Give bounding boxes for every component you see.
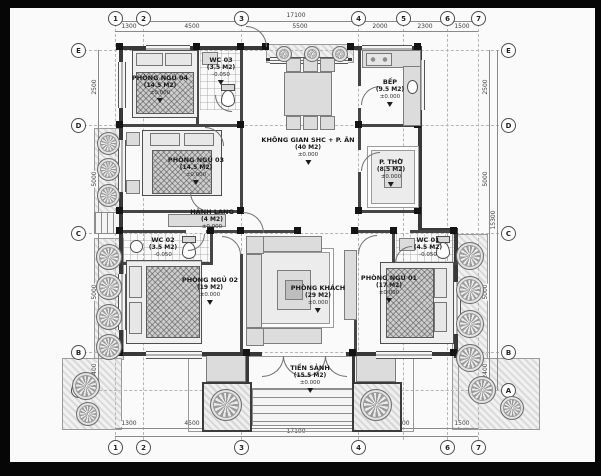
entry-steps xyxy=(252,388,354,426)
axis-bottom-3: 3 xyxy=(234,440,249,455)
column xyxy=(414,207,421,214)
column xyxy=(349,349,356,356)
column xyxy=(193,43,200,50)
wall xyxy=(122,230,186,233)
column xyxy=(116,121,123,128)
room-name: BẾP xyxy=(376,78,404,86)
room-name: PHÒNG NGỦ 02 xyxy=(182,276,238,284)
dim-line xyxy=(115,436,478,437)
porch-base xyxy=(206,354,246,382)
sofa xyxy=(262,236,322,252)
room-area: (17 M2) xyxy=(361,282,417,290)
room-area: (40 M2) xyxy=(261,144,354,152)
wall xyxy=(358,172,361,212)
column xyxy=(294,227,301,234)
sofa-corner xyxy=(246,328,264,346)
room-label-wc1: WC 01 (4.5 M2) -0.050 xyxy=(414,236,442,259)
dim-right-seg: 5000 xyxy=(483,170,489,187)
room-label-bedroom1: PHÒNG NGỦ 01 (17 M2) ±0.000 xyxy=(361,274,417,303)
axis-top-2: 2 xyxy=(136,11,151,26)
level-marker-icon xyxy=(218,80,224,85)
axis-left-D: D xyxy=(71,118,86,133)
wall xyxy=(210,233,213,265)
room-area: (8.5 M2) xyxy=(377,166,405,174)
sofa-corner xyxy=(246,236,264,254)
axis-bottom-7: 7 xyxy=(471,440,486,455)
level-marker-icon xyxy=(305,160,311,165)
room-label-bedroom2: PHÒNG NGỦ 02 (19 M2) ±0.000 xyxy=(182,276,238,305)
room-label-bedroom3: PHÒNG NGỦ 03 (14.5 M2) ±0.000 xyxy=(168,156,224,185)
dim-top-seg: 2300 xyxy=(416,24,433,30)
pillow xyxy=(129,302,142,334)
axis-top-6: 6 xyxy=(440,11,455,26)
room-label-kitchen: BẾP (9.5 M2) ±0.000 xyxy=(376,78,404,107)
plant-icon xyxy=(456,276,484,304)
wall xyxy=(249,352,262,356)
room-name: P. THỜ xyxy=(377,158,405,166)
room-name: KHÔNG GIAN SHC + P. ĂN xyxy=(261,136,354,144)
plant-icon xyxy=(72,372,100,400)
plant-icon xyxy=(456,242,484,270)
room-level: ±0.000 xyxy=(376,94,404,101)
column xyxy=(116,207,123,214)
room-level: ±0.000 xyxy=(190,224,234,231)
room-name: HÀNH LANG xyxy=(190,208,234,216)
plant-icon xyxy=(96,334,122,360)
column xyxy=(450,227,457,234)
room-name: WC 03 xyxy=(207,56,235,64)
room-area: (14.5 M2) xyxy=(168,164,224,172)
plant-icon xyxy=(500,396,524,420)
room-label-common-space: KHÔNG GIAN SHC + P. ĂN (40 M2) ±0.000 xyxy=(261,136,354,165)
wall xyxy=(240,254,243,352)
pillow xyxy=(434,268,447,298)
level-marker-icon xyxy=(388,182,394,187)
dim-bottom-seg: 1500 xyxy=(453,421,470,427)
wall xyxy=(246,356,249,384)
room-level: -0.050 xyxy=(207,72,235,79)
plant-icon xyxy=(332,46,348,62)
room-area: (3.5 M2) xyxy=(149,244,177,252)
dim-top-overall: 17100 xyxy=(285,13,306,19)
dim-right-seg: 2500 xyxy=(483,78,489,95)
column xyxy=(237,121,244,128)
dim-top-seg: 4500 xyxy=(183,24,200,30)
plant-icon xyxy=(210,389,242,421)
room-label-living: PHÒNG KHÁCH (29 M2) ±0.000 xyxy=(291,284,346,313)
chair xyxy=(286,116,301,130)
wall xyxy=(358,50,361,86)
room-name: PHÒNG NGỦ 01 xyxy=(361,274,417,282)
axis-bottom-6: 6 xyxy=(440,440,455,455)
room-level: -0.050 xyxy=(149,252,177,259)
axis-bottom-1: 1 xyxy=(108,440,123,455)
chair xyxy=(303,116,318,130)
axis-top-3: 3 xyxy=(234,11,249,26)
room-area: (4.5 M2) xyxy=(414,244,442,252)
dim-left-seg: 2500 xyxy=(92,78,98,95)
plant-icon xyxy=(304,46,320,62)
dim-bottom-seg: 1300 xyxy=(120,421,137,427)
column xyxy=(355,207,362,214)
dim-right-overall: 15300 xyxy=(491,209,497,230)
room-area: (14.5 M2) xyxy=(132,82,188,90)
room-level: ±0.000 xyxy=(290,380,330,387)
pillow xyxy=(434,302,447,332)
column xyxy=(243,349,250,356)
plant-icon xyxy=(97,158,120,181)
dim-right-seg: 5000 xyxy=(483,283,489,300)
room-level: ±0.000 xyxy=(182,292,238,299)
level-marker-icon xyxy=(307,388,313,393)
chair xyxy=(320,58,335,72)
room-label-bedroom4: PHÒNG NGỦ 04 (14.5 M2) ±0.000 xyxy=(132,74,188,103)
plant-icon xyxy=(96,274,122,300)
level-marker-icon xyxy=(207,300,213,305)
dim-line xyxy=(497,50,498,390)
nightstand xyxy=(126,180,140,194)
axis-top-5: 5 xyxy=(396,11,411,26)
room-level: ±0.000 xyxy=(168,172,224,179)
axis-right-E: E xyxy=(501,43,516,58)
dim-top-seg: 1500 xyxy=(453,24,470,30)
room-label-worship: P. THỜ (8.5 M2) ±0.000 xyxy=(377,158,405,187)
column xyxy=(116,227,123,234)
plant-icon xyxy=(96,244,122,270)
column xyxy=(351,227,358,234)
axis-top-1: 1 xyxy=(108,11,123,26)
axis-left-E: E xyxy=(71,43,86,58)
wall xyxy=(352,356,355,384)
room-area: (19 M2) xyxy=(182,284,238,292)
plant-icon xyxy=(276,46,292,62)
pillow xyxy=(165,53,192,66)
dim-line xyxy=(115,21,478,22)
room-label-porch: TIỀN SẢNH (15.5 M2) ±0.000 xyxy=(290,364,330,393)
room-level: ±0.000 xyxy=(361,290,417,297)
dim-line xyxy=(115,31,478,32)
plant-icon xyxy=(97,184,120,207)
room-name: WC 02 xyxy=(149,236,177,244)
room-area: (29 M2) xyxy=(291,292,346,300)
level-marker-icon xyxy=(157,98,163,103)
pillow xyxy=(129,266,142,298)
level-marker-icon xyxy=(386,298,392,303)
axis-left-B: B xyxy=(71,345,86,360)
column xyxy=(116,43,123,50)
stove-icon xyxy=(366,53,392,66)
room-level: ±0.000 xyxy=(377,174,405,181)
room-area: (4 M2) xyxy=(190,216,234,224)
axis-top-4: 4 xyxy=(351,11,366,26)
room-name: TIỀN SẢNH xyxy=(290,364,330,372)
plant-icon xyxy=(76,402,100,426)
sofa xyxy=(262,328,322,344)
axis-right-C: C xyxy=(501,226,516,241)
wc-sink xyxy=(130,240,143,253)
pillow xyxy=(150,133,180,146)
axis-bottom-4: 4 xyxy=(351,440,366,455)
room-area: (3.5 M2) xyxy=(207,64,235,72)
room-name: PHÒNG NGỦ 04 xyxy=(132,74,188,82)
level-marker-icon xyxy=(387,102,393,107)
chair xyxy=(320,116,335,130)
axis-right-B: B xyxy=(501,345,516,360)
room-area: (9.5 M2) xyxy=(376,86,404,94)
wall xyxy=(122,124,243,127)
room-level: ±0.000 xyxy=(261,152,354,159)
kitchen-counter xyxy=(403,66,421,126)
plant-icon xyxy=(456,344,484,372)
level-marker-icon xyxy=(193,180,199,185)
column xyxy=(355,121,362,128)
room-level: ±0.000 xyxy=(291,300,346,307)
column xyxy=(347,43,354,50)
axis-left-C: C xyxy=(71,226,86,241)
room-name: WC 01 xyxy=(414,236,442,244)
tv-cabinet xyxy=(344,250,357,320)
room-label-hall: HÀNH LANG (4 M2) ±0.000 xyxy=(190,208,234,231)
room-level: -0.050 xyxy=(414,252,442,259)
window xyxy=(118,62,126,108)
level-marker-icon xyxy=(315,308,321,313)
wall xyxy=(358,108,361,150)
room-label-wc3: WC 03 (3.5 M2) -0.050 xyxy=(207,56,235,85)
axis-top-7: 7 xyxy=(471,11,486,26)
sink-icon xyxy=(407,80,418,94)
dim-top-seg: 2000 xyxy=(371,24,388,30)
dining-table xyxy=(284,72,332,116)
pillow xyxy=(136,53,163,66)
axis-bottom-2: 2 xyxy=(136,440,151,455)
room-area: (15.5 M2) xyxy=(290,372,330,380)
column xyxy=(390,227,397,234)
dim-top-seg: 5500 xyxy=(291,24,308,30)
plant-icon xyxy=(468,376,496,404)
column xyxy=(414,43,421,50)
wall xyxy=(358,210,418,213)
axis-right-D: D xyxy=(501,118,516,133)
window xyxy=(376,351,432,359)
room-level: ±0.000 xyxy=(132,90,188,97)
floor-plan-image: 17100 1300 4500 5500 2000 2300 1500 1300… xyxy=(0,0,601,476)
dim-top-seg: 1300 xyxy=(120,24,137,30)
plant-icon xyxy=(97,132,120,155)
sofa xyxy=(246,254,262,328)
wall xyxy=(352,230,394,233)
room-name: PHÒNG KHÁCH xyxy=(291,284,346,292)
plant-icon xyxy=(96,304,122,330)
wall xyxy=(240,50,243,212)
nightstand xyxy=(126,132,140,146)
room-label-wc2: WC 02 (3.5 M2) -0.050 xyxy=(149,236,177,259)
plant-icon xyxy=(456,310,484,338)
room-name: PHÒNG NGỦ 03 xyxy=(168,156,224,164)
window xyxy=(146,351,202,359)
column xyxy=(237,43,244,50)
plant-icon xyxy=(360,389,392,421)
